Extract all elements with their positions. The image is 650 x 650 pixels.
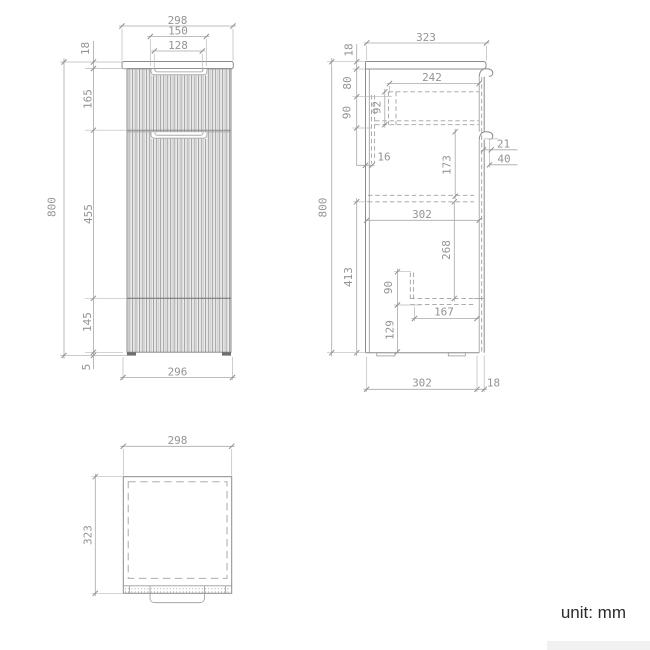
- front-handle-inner-width-dim: 128: [168, 39, 188, 52]
- side-back-gap-dim: 16: [377, 151, 390, 164]
- side-drawer-depth-dim: 242: [422, 71, 442, 84]
- side-door-top-drop-dim: 173: [441, 155, 454, 175]
- side-view: 323 18 80 90 242 92 16 173 21 40 302 268…: [317, 31, 518, 392]
- side-depth-bottom-dim: 302: [412, 377, 432, 390]
- front-door-height-dim: 455: [82, 204, 95, 224]
- side-depth-top-dim: 323: [416, 31, 436, 44]
- countertop-side: [366, 62, 487, 70]
- front-total-height-dim: 800: [46, 197, 59, 217]
- front-width-bottom-dim: 296: [168, 366, 188, 379]
- side-countertop-thickness-dim: 18: [343, 43, 356, 56]
- top-view: 298 323: [82, 434, 235, 603]
- front-foot-height-dim: 5: [80, 364, 93, 371]
- top-view-labels: 298 323: [82, 434, 188, 545]
- side-lower-height-dim: 413: [342, 267, 355, 287]
- watermark-strip: [547, 641, 650, 650]
- drawing-page: 298 150 128 18 165 455 145 5 800 296: [0, 0, 650, 650]
- side-top-gap-dim: 80: [341, 76, 354, 89]
- top-depth-dim: 323: [82, 525, 95, 545]
- countertop-front: [122, 62, 233, 69]
- front-bottom-drawer-height-dim: 145: [81, 312, 94, 332]
- front-handle-width-dim: 150: [168, 25, 188, 38]
- top-width-dim: 298: [168, 434, 188, 447]
- side-shelf-clearance-dim: 90: [382, 281, 395, 294]
- handle-recess-plan: [150, 586, 205, 603]
- top-view-body: [123, 477, 231, 603]
- side-shelf-drop-dim: 268: [440, 240, 453, 260]
- side-drawer-height-dim: 90: [341, 106, 354, 119]
- top-view-outline: [123, 477, 231, 594]
- front-left-foot: [127, 352, 136, 355]
- front-view: 298 150 128 18 165 455 145 5 800 296: [46, 14, 237, 380]
- drawer-pull-profile: [479, 69, 493, 77]
- technical-drawing-canvas: 298 150 128 18 165 455 145 5 800 296: [0, 0, 650, 650]
- side-drawer-box-height-dim: 92: [371, 101, 384, 114]
- unit-label: unit: mm: [546, 603, 626, 623]
- front-top-drawer-height-dim: 165: [82, 89, 95, 109]
- top-view-dimensions: [92, 444, 235, 597]
- side-front-thickness-dim: 18: [487, 377, 500, 390]
- side-shelf-depth-dim: 167: [434, 306, 454, 319]
- front-countertop-thickness-dim: 18: [79, 42, 92, 55]
- side-pull-lip-dim: 21: [497, 138, 510, 151]
- front-view-body: [122, 62, 233, 356]
- front-right-foot: [222, 352, 231, 355]
- top-view-hidden-carcass: [128, 482, 227, 579]
- side-total-height-dim: 800: [317, 198, 330, 218]
- side-pull-height-dim: 40: [497, 153, 510, 166]
- side-plinth-height-dim: 129: [384, 320, 397, 340]
- fluted-front-panel: [127, 69, 231, 353]
- side-inner-depth-dim: 302: [412, 208, 432, 221]
